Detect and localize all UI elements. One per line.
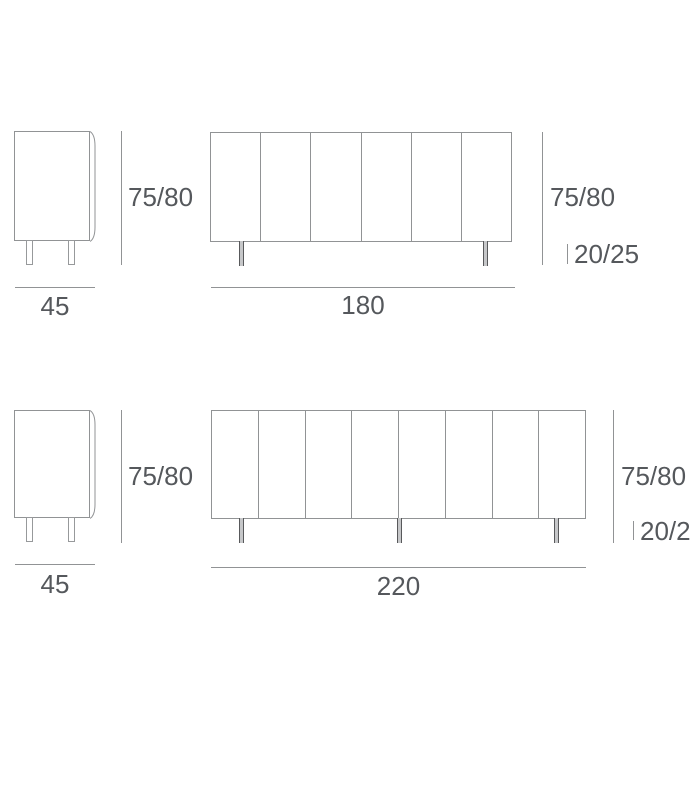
door-panel	[399, 411, 446, 518]
leg-height-dimension-line	[567, 244, 568, 264]
width-dimension-line	[211, 567, 586, 568]
door-panel	[259, 411, 306, 518]
door-panel	[446, 411, 493, 518]
dimension-diagram: 75/80 45 180 75/80 20/25 75/80 45	[0, 0, 700, 800]
large-sideboard-side-view-body	[14, 410, 90, 518]
width-dimension-label: 45	[15, 570, 95, 598]
cabinet-leg	[239, 241, 244, 266]
cabinet-leg	[397, 518, 402, 543]
door-panel	[493, 411, 540, 518]
leg-height-dimension-label: 20/25	[574, 240, 639, 268]
door-panel	[539, 411, 585, 518]
height-dimension-label: 75/80	[128, 183, 193, 211]
door-panel	[211, 133, 261, 241]
cabinet-leg	[68, 240, 75, 265]
small-sideboard-front-view-body	[210, 132, 512, 242]
small-sideboard-side-view-body	[14, 131, 90, 241]
cabinet-leg	[239, 518, 244, 543]
height-dimension-label: 75/80	[128, 462, 193, 490]
door-panel	[311, 133, 361, 241]
height-dimension-line	[542, 132, 543, 265]
height-dimension-line	[613, 410, 614, 543]
door-panel	[362, 133, 412, 241]
door-panel	[462, 133, 511, 241]
leg-height-dimension-line	[633, 521, 634, 540]
door-edge-profile	[90, 131, 96, 242]
door-panel	[261, 133, 311, 241]
door-panel	[352, 411, 399, 518]
door-panel	[306, 411, 353, 518]
door-panel	[412, 133, 462, 241]
leg-height-dimension-label: 20/2	[640, 517, 691, 545]
door-panel	[212, 411, 259, 518]
width-dimension-line	[15, 287, 95, 288]
cabinet-leg	[483, 241, 488, 266]
cabinet-leg	[26, 517, 33, 542]
door-edge-profile	[90, 410, 96, 519]
width-dimension-label: 220	[211, 572, 586, 600]
cabinet-leg	[26, 240, 33, 265]
width-dimension-label: 45	[15, 292, 95, 320]
width-dimension-line	[211, 287, 515, 288]
height-dimension-label: 75/80	[550, 183, 615, 211]
height-dimension-label: 75/80	[621, 462, 686, 490]
cabinet-leg	[68, 517, 75, 542]
large-sideboard-front-view-body	[211, 410, 586, 519]
cabinet-leg	[554, 518, 559, 543]
height-dimension-line	[121, 131, 122, 265]
width-dimension-label: 180	[211, 291, 515, 319]
width-dimension-line	[15, 564, 95, 565]
height-dimension-line	[121, 410, 122, 543]
